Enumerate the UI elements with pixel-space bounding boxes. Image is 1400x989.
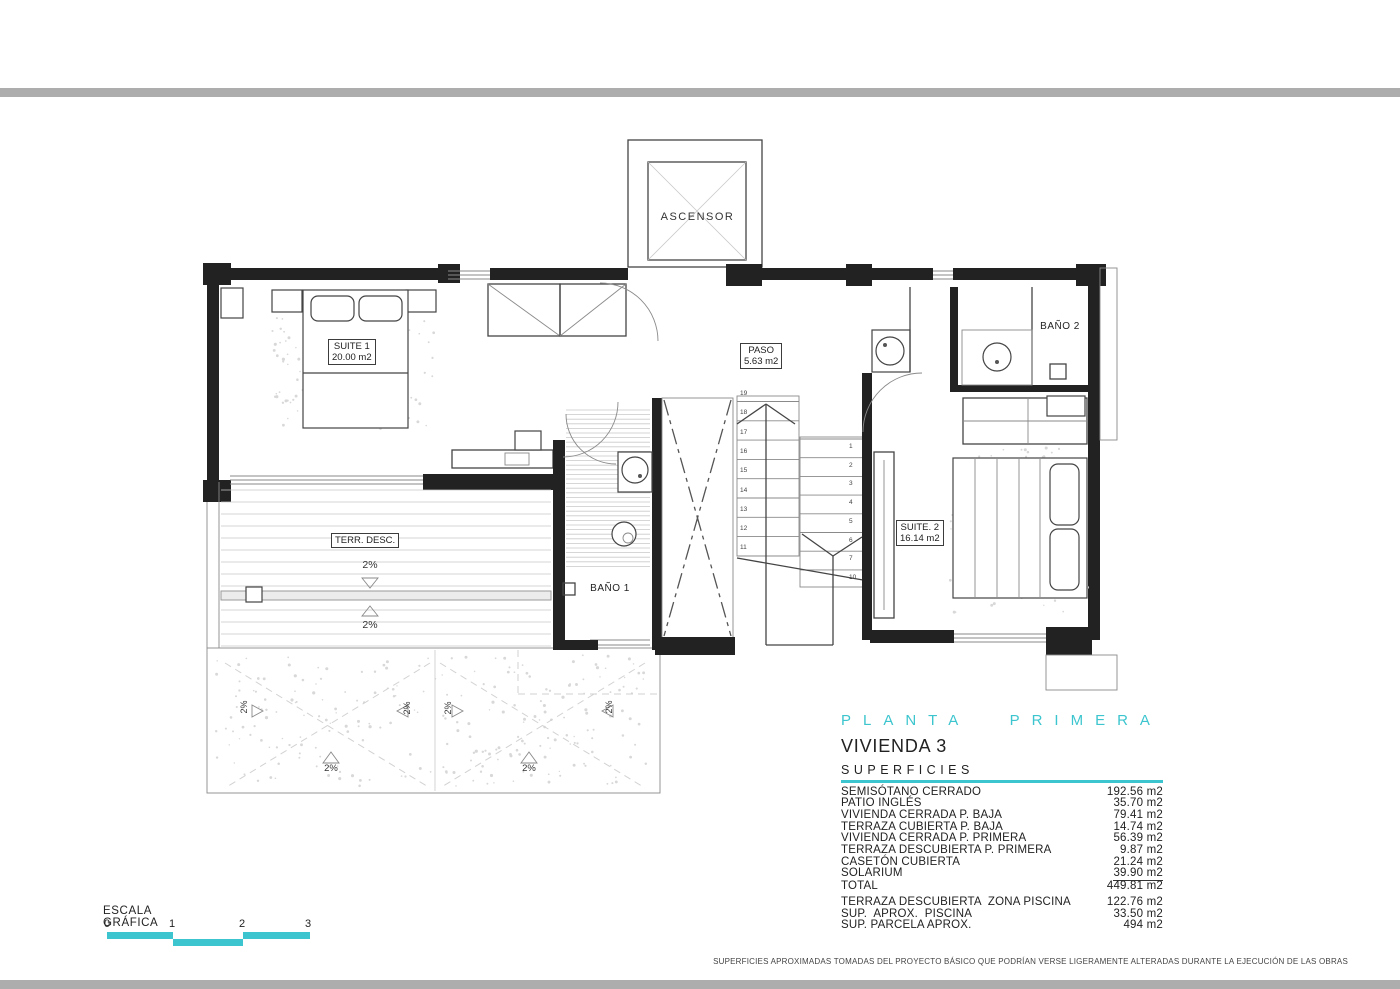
stair-step-number: 7 — [849, 555, 853, 562]
slope-arrow-right — [252, 705, 263, 717]
surface-value: 122.76 m2 — [1107, 897, 1163, 909]
extra-surfaces-table: TERRAZA DESCUBIERTA ZONA PISCINA122.76 m… — [841, 897, 1163, 932]
slope-arrow-up — [362, 606, 378, 616]
double-bed — [953, 458, 1087, 598]
drain-channel — [221, 591, 551, 600]
stair-step-number: 16 — [740, 448, 747, 455]
title-block: PLANTA PRIMERA VIVIENDA 3 SUPERFICIES SE… — [841, 712, 1163, 893]
stair-step-number: 14 — [740, 487, 747, 494]
wardrobe — [488, 284, 626, 336]
slope-label: 2% — [355, 619, 385, 631]
gravel-texture — [215, 654, 647, 787]
stair-step-number: 6 — [849, 537, 853, 544]
slope-label: 2% — [516, 763, 542, 774]
decking-lines — [221, 490, 551, 646]
room-name: PASO — [744, 345, 778, 356]
scale-bar-segment — [173, 939, 243, 946]
slope-arrow-up — [323, 752, 339, 763]
washbasin — [622, 457, 648, 483]
surface-label: SUP. PARCELA APROX. — [841, 920, 972, 932]
accent-rule — [841, 780, 1163, 783]
slope-label: 2% — [355, 559, 385, 571]
wardrobe — [963, 396, 1087, 444]
desk — [874, 452, 894, 618]
slope-arrow-down — [362, 578, 378, 588]
stair-step-number: 13 — [740, 506, 747, 513]
stair-step-number: 10 — [849, 574, 856, 581]
room-area: 5.63 m2 — [744, 356, 778, 367]
elevator-label: ASCENSOR — [640, 211, 755, 223]
bay-window — [1100, 268, 1117, 440]
disclaimer-note: SUPERFICIES APROXIMADAS TOMADAS DEL PROY… — [608, 957, 1348, 966]
stair-step-number: 1 — [849, 443, 853, 450]
room-area: 16.14 m2 — [900, 533, 940, 544]
stair-treads-down — [800, 439, 863, 570]
surfaces-heading: SUPERFICIES — [841, 763, 1163, 777]
stair-step-number: 19 — [740, 390, 747, 397]
door-arc — [600, 283, 658, 341]
room-name: TERR. DESC. — [335, 535, 395, 546]
room-area: 20.00 m2 — [332, 352, 372, 363]
window-top-2 — [933, 271, 953, 279]
suite2-label-box: SUITE. 2 16.14 m2 — [896, 520, 944, 546]
scale-tick: 1 — [169, 918, 175, 930]
slope-label: 2% — [443, 697, 453, 719]
floor-title: PLANTA PRIMERA — [841, 712, 1163, 729]
surface-row: TERRAZA DESCUBIERTA ZONA PISCINA122.76 m… — [841, 897, 1163, 909]
stair-step-number: 4 — [849, 499, 853, 506]
surface-value: 494 m2 — [1123, 920, 1163, 932]
slope-label: 2% — [402, 697, 412, 719]
slope-arrow-up — [521, 752, 537, 763]
floorplan-drawing — [0, 0, 1400, 989]
scale-bar-segment — [107, 932, 173, 939]
surface-value: 9.87 m2 — [1120, 845, 1163, 857]
scale-bar-segment — [243, 932, 310, 939]
surface-row: TERRAZA DESCUBIERTA P. PRIMERA9.87 m2 — [841, 845, 1163, 857]
surface-label: TOTAL — [841, 881, 878, 893]
scale-label: ESCALA GRÁFICA — [103, 905, 158, 929]
desk — [452, 431, 553, 468]
scale-tick: 3 — [305, 918, 311, 930]
paso-label-box: PASO 5.63 m2 — [740, 343, 782, 369]
slope-arrow-right — [452, 705, 463, 717]
stair-step-number: 15 — [740, 467, 747, 474]
suite1-label-box: SUITE 1 20.00 m2 — [328, 339, 376, 365]
stair-step-number: 12 — [740, 525, 747, 532]
nightstand — [406, 290, 436, 312]
surface-label: TERRAZA DESCUBIERTA P. PRIMERA — [841, 845, 1052, 857]
solarium-roof — [207, 648, 660, 793]
surface-label: VIVIENDA CERRADA P. BAJA — [841, 810, 1002, 822]
surface-label: TERRAZA DESCUBIERTA ZONA PISCINA — [841, 897, 1071, 909]
bathroom2 — [950, 287, 1090, 392]
surface-value: 79.41 m2 — [1113, 810, 1163, 822]
surface-row: SUP. PARCELA APROX.494 m2 — [841, 920, 1163, 932]
window-terrace — [230, 476, 423, 484]
bathroom1-label: BAÑO 1 — [568, 583, 652, 594]
stair-treads-up — [737, 402, 799, 556]
slope-label: 2% — [318, 763, 344, 774]
stair-step-number: 18 — [740, 409, 747, 416]
drain-box — [246, 587, 262, 602]
scale-tick: 0 — [104, 918, 110, 930]
hall-washbasin — [872, 287, 910, 372]
scale-tick: 2 — [239, 918, 245, 930]
room-name: SUITE. 2 — [900, 522, 940, 533]
void-shaft — [655, 398, 735, 655]
bidet — [1050, 364, 1066, 379]
surface-value: 449.81 m2 — [1107, 881, 1163, 893]
dwelling-title: VIVIENDA 3 — [841, 736, 1163, 757]
stair-step-number: 2 — [849, 462, 853, 469]
surface-row: VIVIENDA CERRADA P. BAJA79.41 m2 — [841, 810, 1163, 822]
room-name: SUITE 1 — [332, 341, 372, 352]
surfaces-table: SEMISÓTANO CERRADO192.56 m2PATIO INGLÉS3… — [841, 787, 1163, 893]
terrace-label-box: TERR. DESC. — [331, 533, 399, 548]
window-bottom — [954, 634, 1046, 642]
stair-step-number: 5 — [849, 518, 853, 525]
stair-step-number: 11 — [740, 544, 747, 551]
toilet — [612, 522, 636, 546]
elevator-shaft — [628, 140, 762, 267]
bathroom2-label: BAÑO 2 — [1018, 321, 1102, 332]
toilet — [983, 343, 1011, 371]
nightstand — [272, 290, 302, 312]
slope-label: 2% — [239, 696, 249, 718]
plan-sheet: ASCENSOR SUITE 1 20.00 m2 PASO 5.63 m2 B… — [0, 0, 1400, 989]
slope-label: 2% — [604, 696, 614, 718]
bathroom1 — [553, 398, 662, 650]
stair-step-number: 17 — [740, 429, 747, 436]
stair-step-number: 3 — [849, 480, 853, 487]
surface-row: TOTAL449.81 m2 — [841, 881, 1163, 893]
